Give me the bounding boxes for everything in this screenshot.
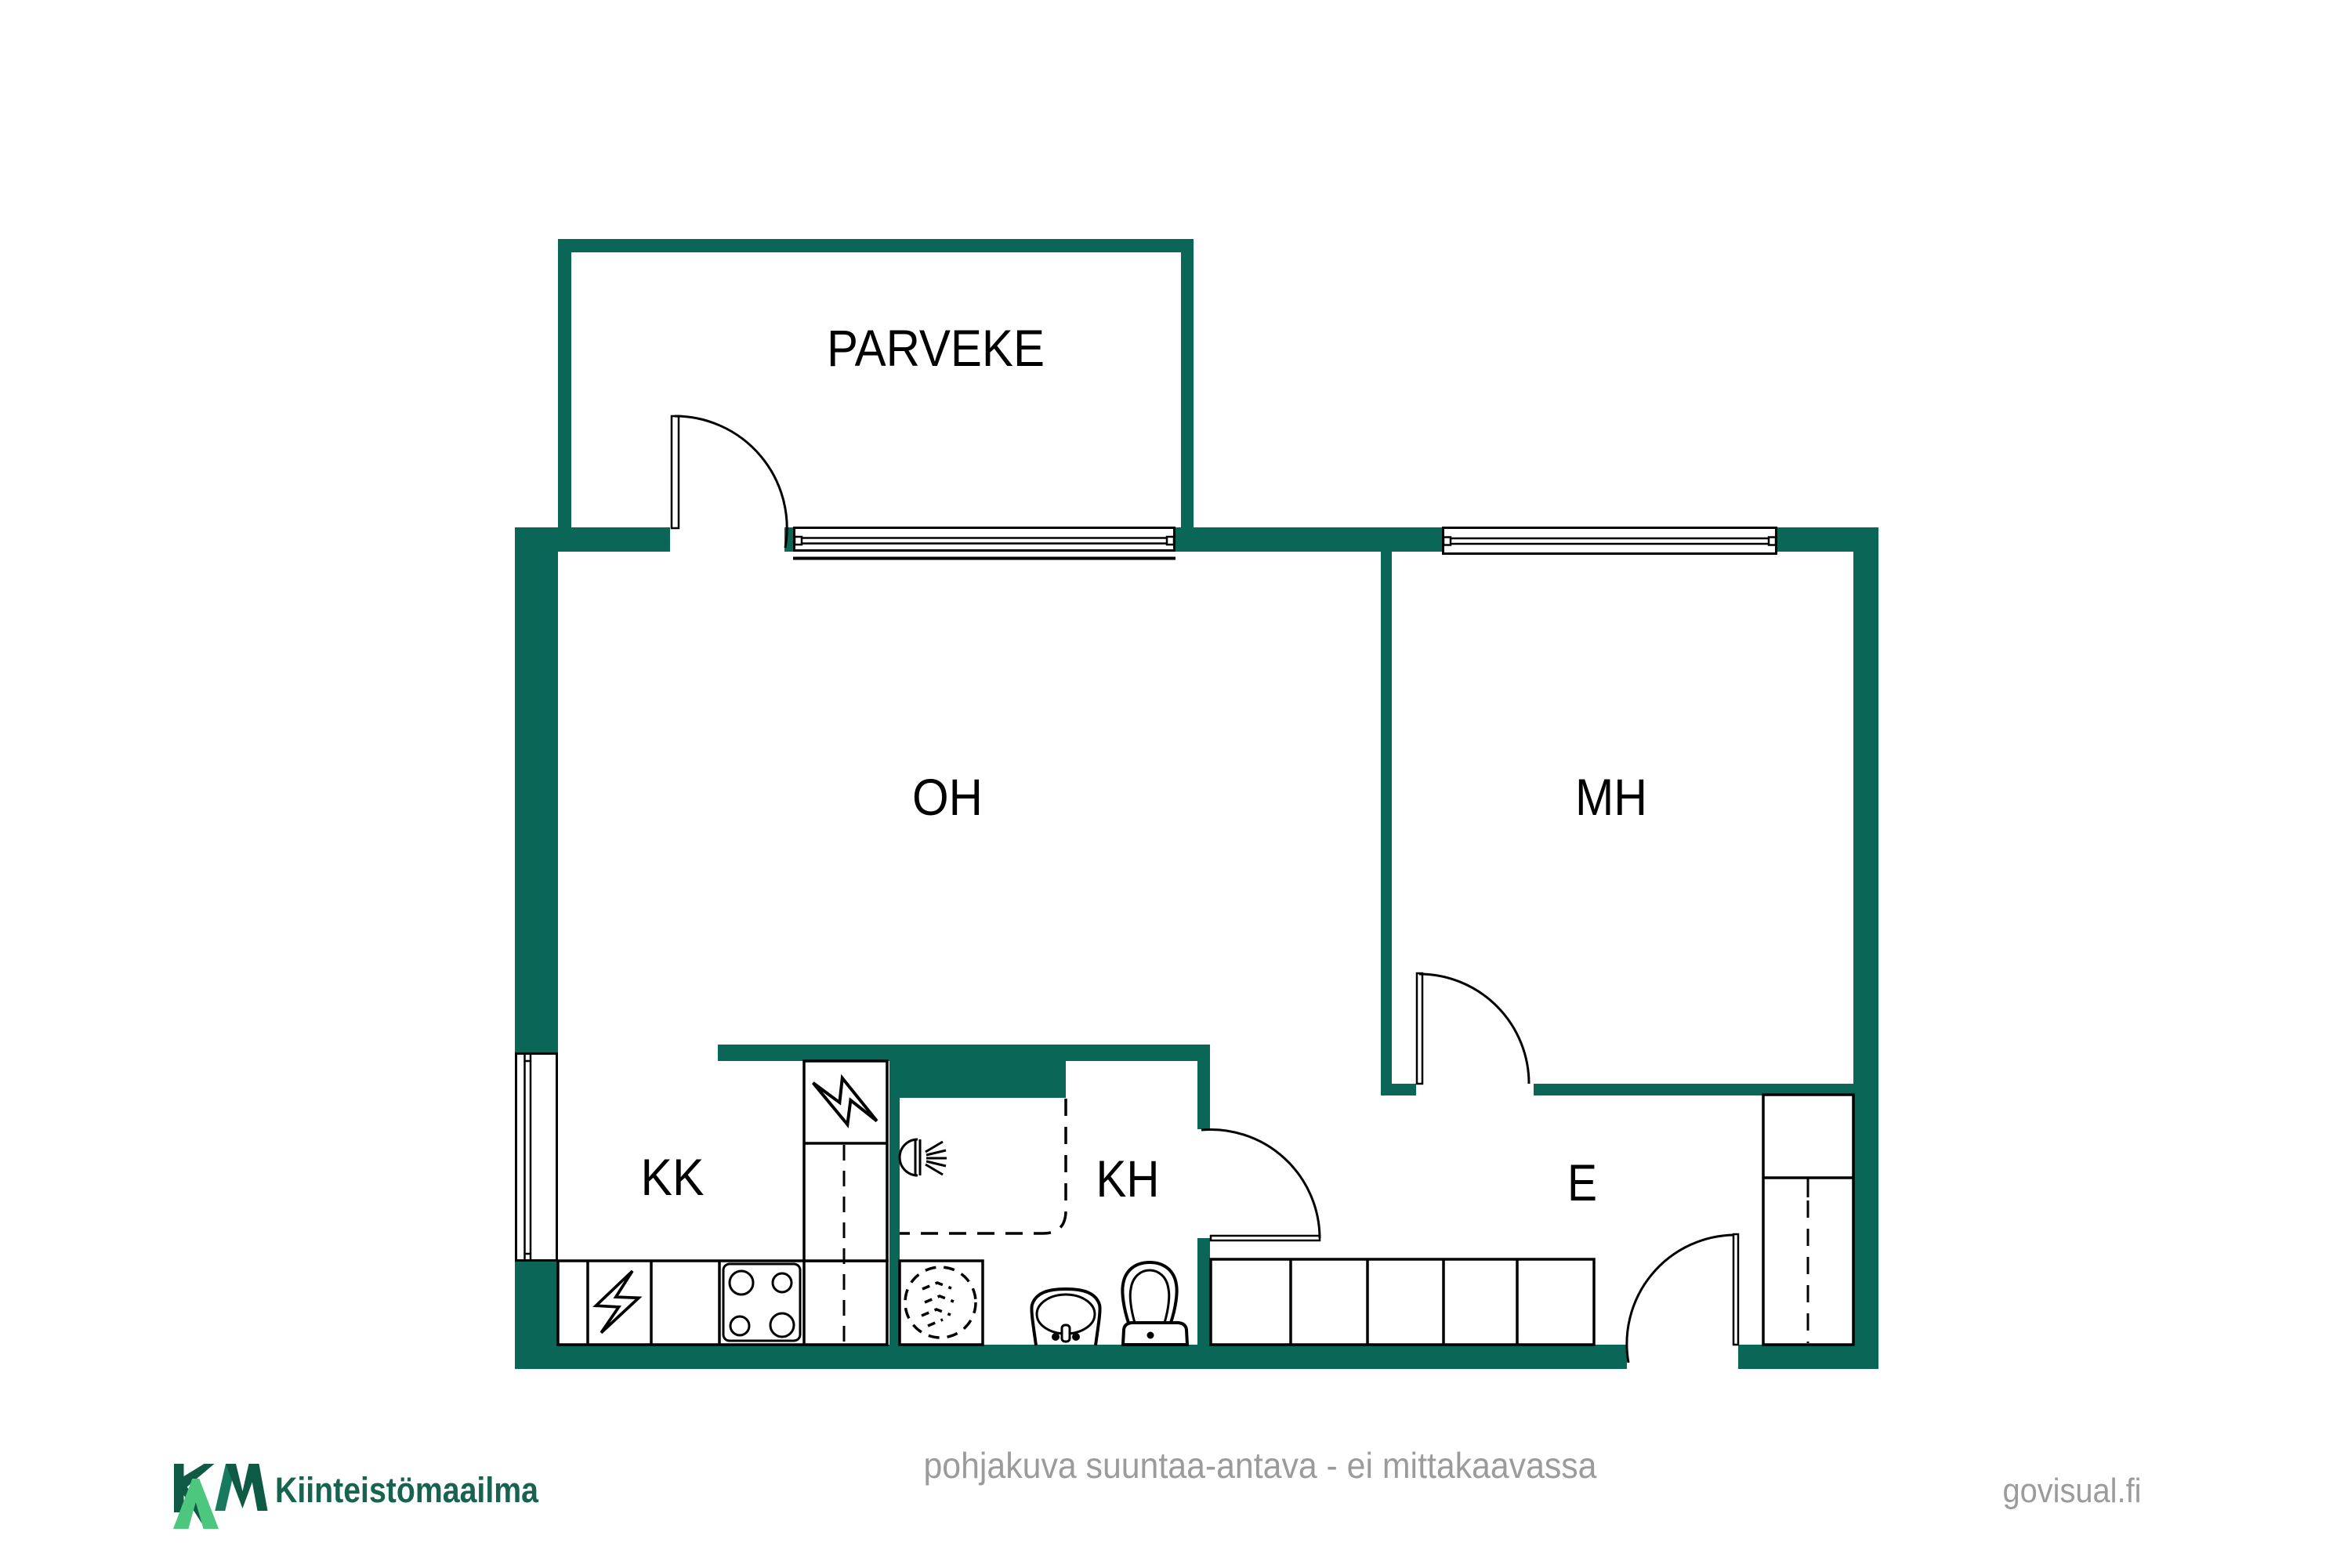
svg-text:KH: KH	[1096, 1150, 1160, 1208]
svg-text:PARVEKE: PARVEKE	[827, 319, 1045, 377]
svg-text:OH: OH	[912, 768, 983, 826]
svg-text:KK: KK	[641, 1148, 705, 1206]
svg-text:MH: MH	[1575, 768, 1647, 826]
svg-text:pohjakuva suuntaa-antava - ei: pohjakuva suuntaa-antava - ei mittakaava…	[924, 1445, 1597, 1486]
svg-text:E: E	[1567, 1153, 1597, 1211]
svg-text:govisual.fi: govisual.fi	[2003, 1472, 2142, 1510]
svg-text:Kiinteistömaailma: Kiinteistömaailma	[275, 1470, 539, 1510]
